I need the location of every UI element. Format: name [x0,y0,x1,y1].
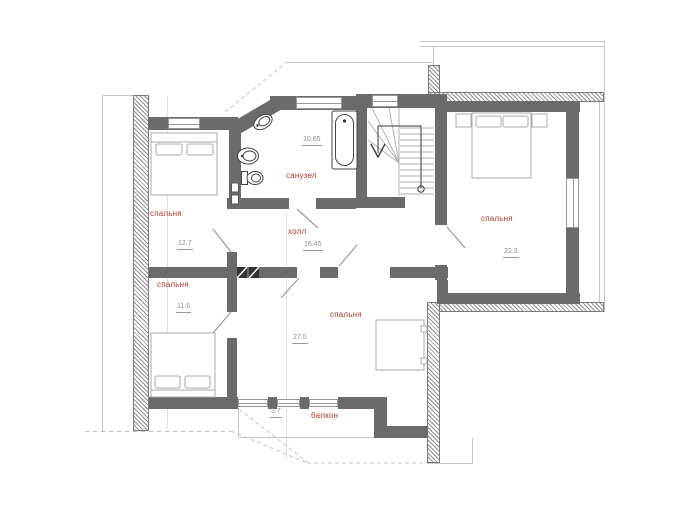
room-area-bedroom-right: 22.3 [503,248,519,258]
toilet-icon [242,172,264,185]
room-area-bedroom-bottom: 27.0 [292,334,308,344]
wardrobe-icon [376,320,427,370]
room-area-hall: 16.45 [303,241,323,251]
room-area-balcony: 3.7 [270,408,282,418]
bed-icon [456,113,547,178]
room-label-hall: холл [288,227,306,236]
room-label-bedroom-right: спальня [481,214,513,223]
bathtub-icon [332,111,357,169]
staircase-icon [368,108,434,196]
room-label-bedroom-bl: спальня [157,280,189,289]
room-area-bedroom-bl: 11.6 [176,303,191,313]
room-area-bathroom: 10.65 [302,136,322,146]
floor-plan: спальня 12.7 санузел 10.65 холл 16.45 сп… [0,0,700,525]
room-label-bathroom: санузел [286,171,317,180]
room-area-bedroom-tl: 12.7 [177,240,193,250]
bed-icon [151,133,217,195]
room-label-bedroom-bottom: спальня [330,310,362,319]
room-label-balcony: балкон [311,411,338,420]
wall-marker-icon [237,267,259,278]
room-label-bedroom-tl: спальня [150,209,182,218]
bed-icon [151,333,215,397]
washbasin-icon [238,148,259,164]
vent-shaft-icon [232,183,239,204]
